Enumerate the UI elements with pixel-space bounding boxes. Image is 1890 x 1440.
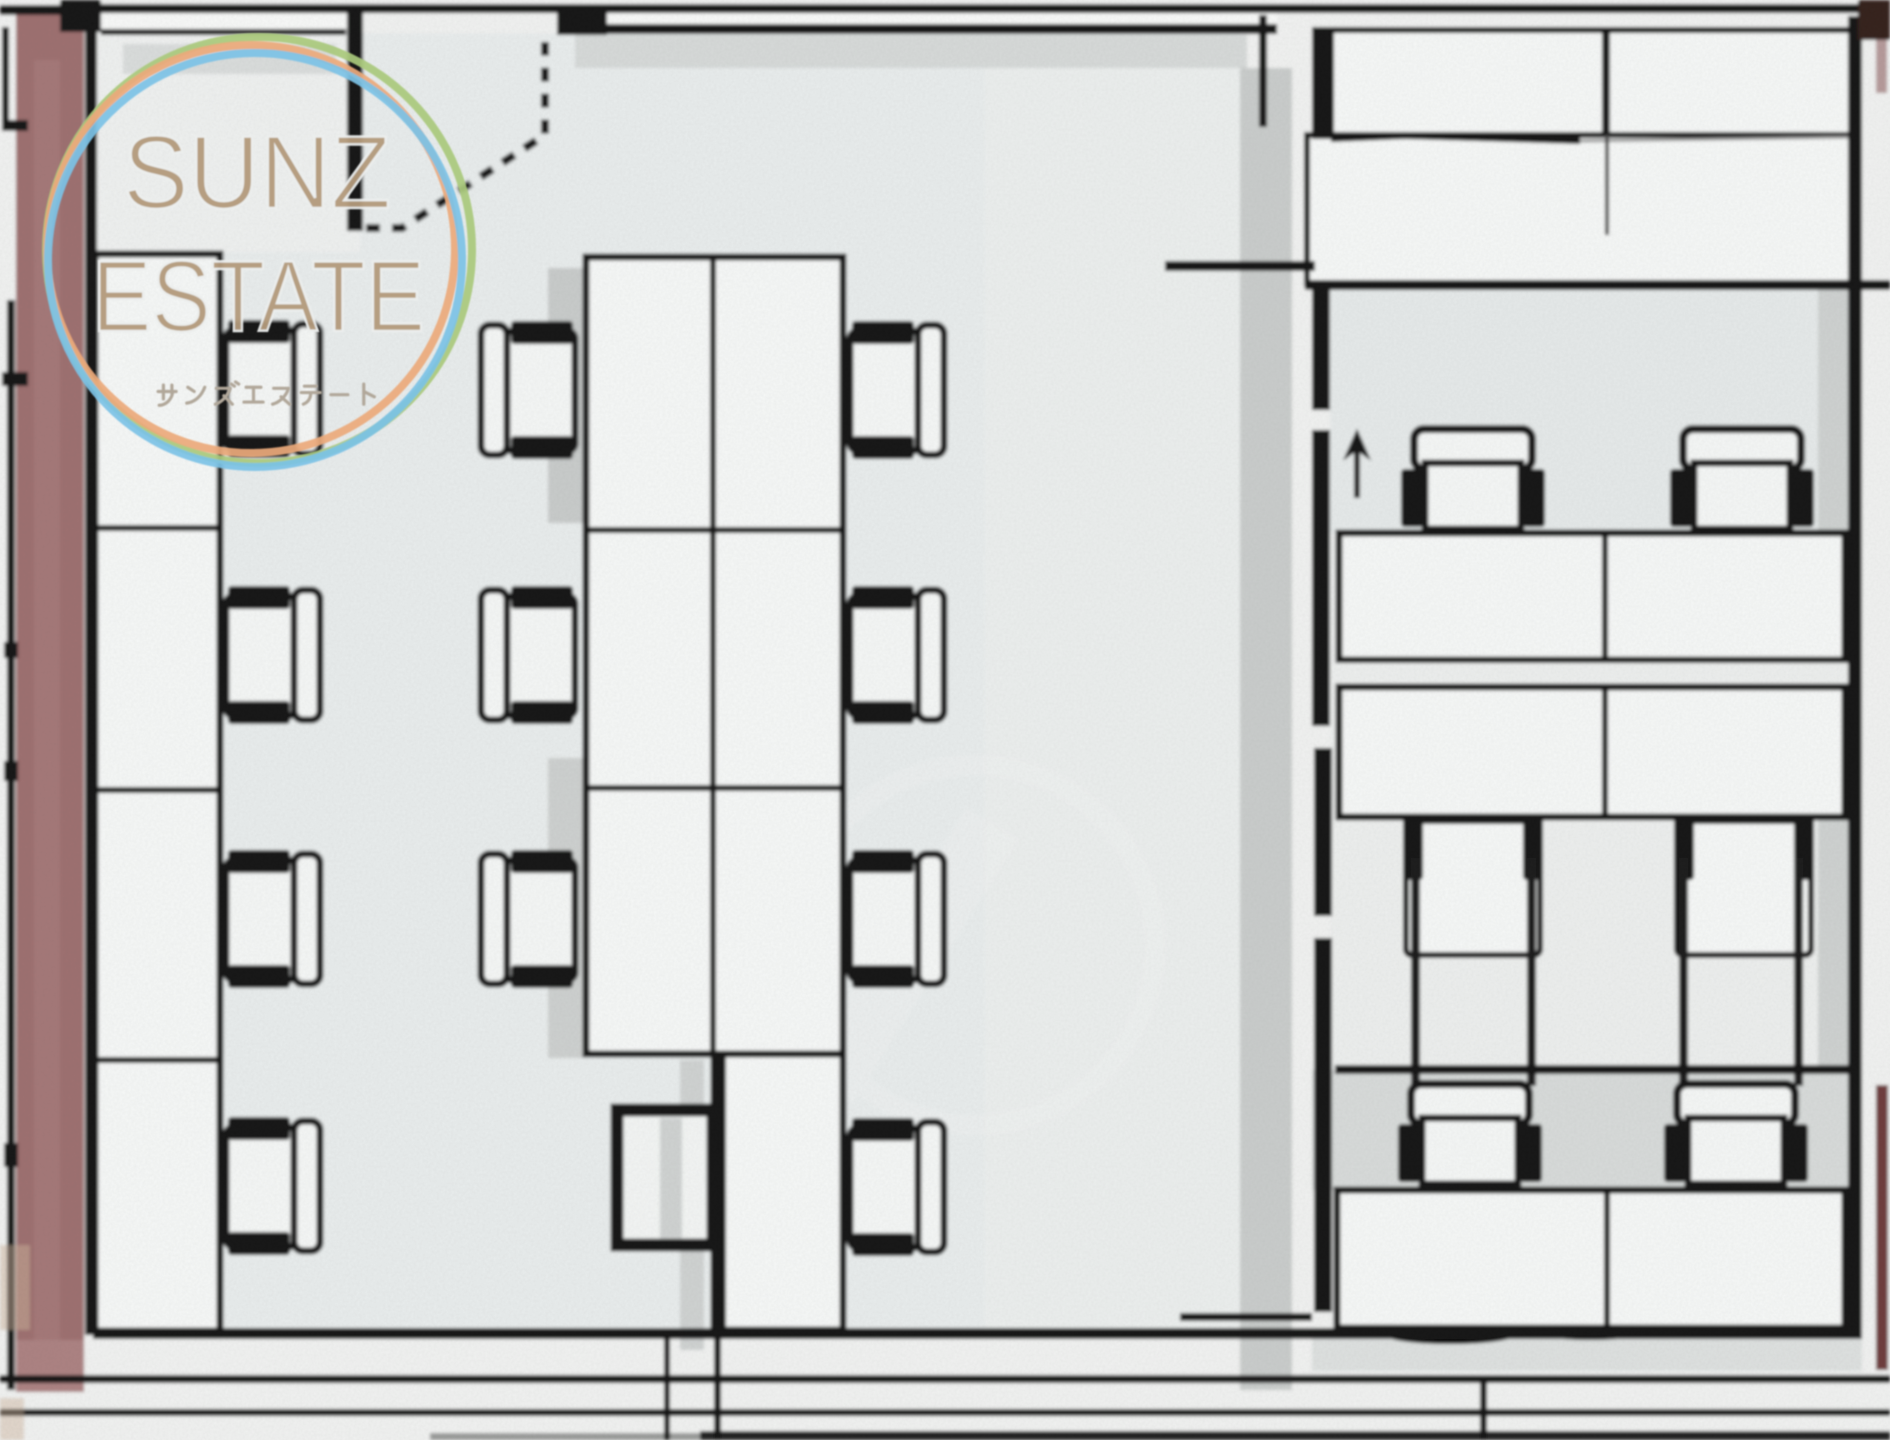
svg-text:SUNZ: SUNZ [123, 115, 391, 231]
svg-text:ESTATE: ESTATE [92, 241, 425, 353]
